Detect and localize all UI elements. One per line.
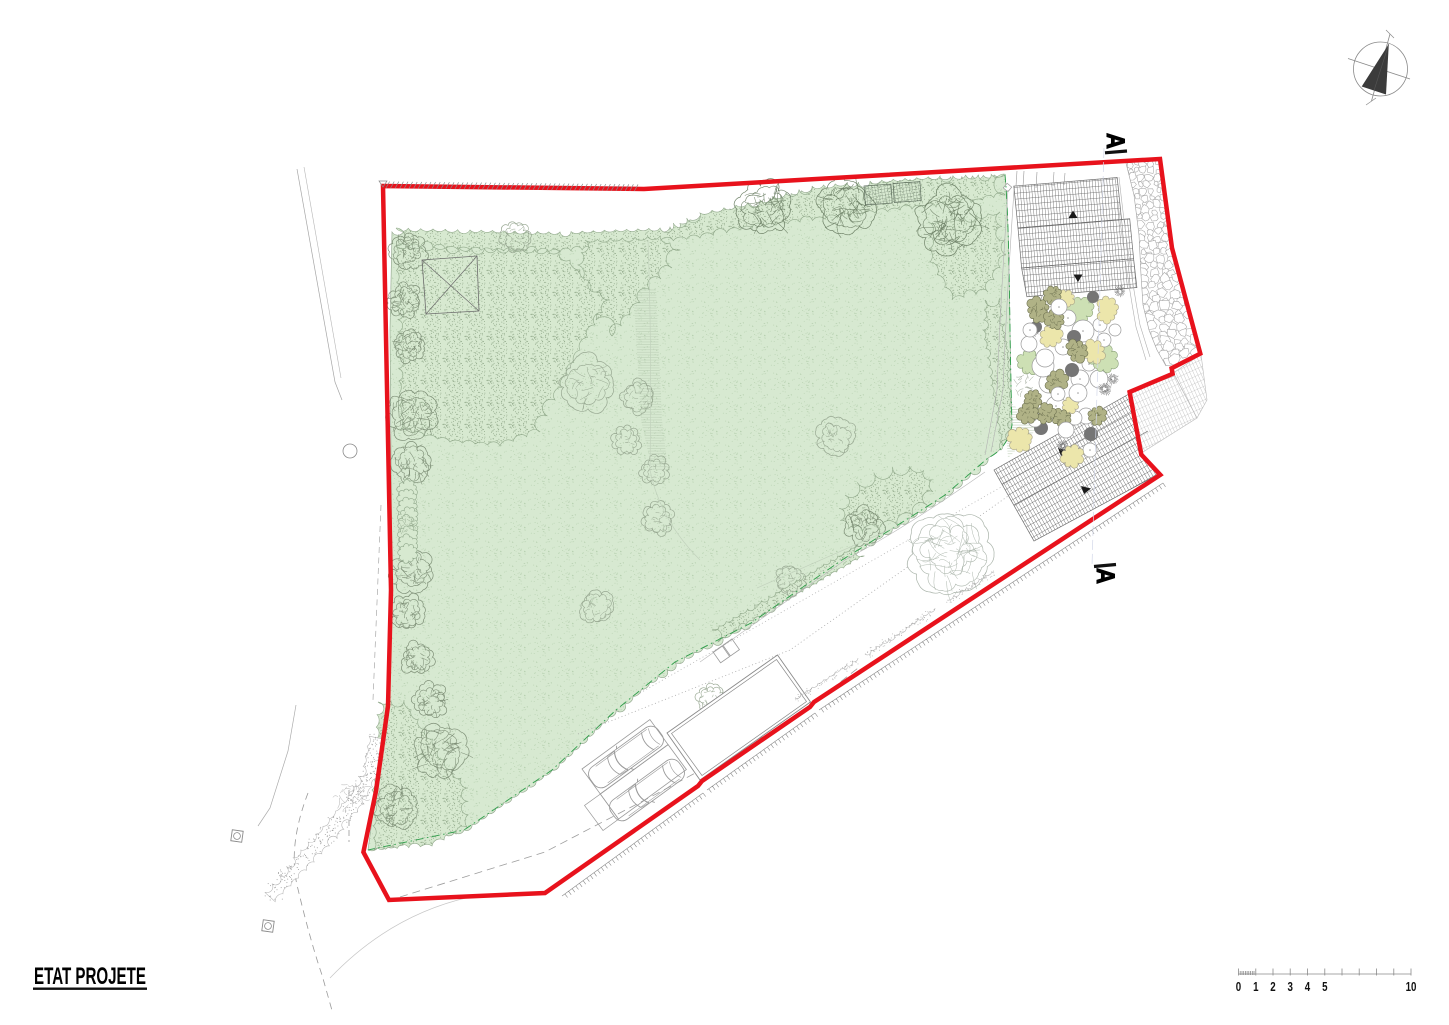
svg-text:1: 1 bbox=[1253, 981, 1258, 994]
svg-text:10: 10 bbox=[1406, 981, 1417, 994]
svg-text:A: A bbox=[1101, 133, 1129, 149]
svg-text:ETAT PROJETE: ETAT PROJETE bbox=[34, 964, 146, 990]
svg-text:A: A bbox=[1091, 568, 1119, 584]
svg-text:4: 4 bbox=[1305, 981, 1311, 994]
svg-text:0: 0 bbox=[1236, 981, 1241, 994]
svg-text:3: 3 bbox=[1287, 981, 1292, 994]
svg-text:5: 5 bbox=[1322, 981, 1327, 994]
svg-text:2: 2 bbox=[1270, 981, 1275, 994]
